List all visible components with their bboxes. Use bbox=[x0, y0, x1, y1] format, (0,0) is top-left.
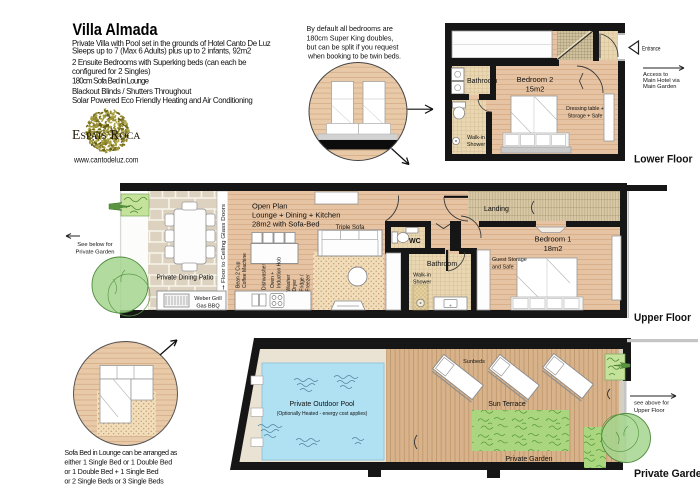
svg-text:Coffee Machine: Coffee Machine bbox=[242, 253, 248, 288]
svg-text:Upper Floor: Upper Floor bbox=[634, 408, 665, 414]
svg-text:configured for 2 Singles): configured for 2 Singles) bbox=[72, 67, 151, 76]
svg-text:Villa Almada: Villa Almada bbox=[73, 21, 159, 39]
svg-text:or 2 Single Beds or 3 Single B: or 2 Single Beds or 3 Single Beds bbox=[64, 477, 164, 486]
svg-text:Blackout Blinds / Shutters Thr: Blackout Blinds / Shutters Throughout bbox=[72, 87, 192, 96]
svg-text:but can be split if you reques: but can be split if you request bbox=[307, 43, 399, 52]
svg-text:Private Dining Patio: Private Dining Patio bbox=[157, 273, 214, 282]
svg-text:Oven +: Oven + bbox=[270, 272, 276, 288]
svg-text:Entrance: Entrance bbox=[642, 45, 661, 52]
svg-text:180cm Sofa Bed in Lounge: 180cm Sofa Bed in Lounge bbox=[72, 76, 150, 85]
svg-text:Bathroom: Bathroom bbox=[427, 261, 458, 268]
svg-text:Open Plan: Open Plan bbox=[252, 202, 287, 211]
svg-text:Lounge + Dining + Kitchen: Lounge + Dining + Kitchen bbox=[252, 211, 340, 220]
svg-text:(Optionally Heated - energy co: (Optionally Heated - energy cost applies… bbox=[277, 411, 368, 417]
svg-text:Gas BBQ: Gas BBQ bbox=[196, 304, 220, 310]
svg-text:Dressing table +: Dressing table + bbox=[566, 106, 604, 112]
svg-text:Bean 2 Cup: Bean 2 Cup bbox=[236, 261, 242, 288]
svg-text:Dryer: Dryer bbox=[292, 279, 298, 292]
svg-text:Sofa Bed in Lounge can be arra: Sofa Bed in Lounge can be arranged as bbox=[64, 448, 177, 457]
svg-text:Induction Hob: Induction Hob bbox=[277, 257, 283, 288]
svg-text:either 1 Single Bed or 1 Doubl: either 1 Single Bed or 1 Double Bed bbox=[64, 458, 172, 467]
svg-text:Sleeps up to 7 (Max 6 Adults): Sleeps up to 7 (Max 6 Adults) plus up to… bbox=[72, 46, 251, 55]
svg-text:28m2 with Sofa-Bed: 28m2 with Sofa-Bed bbox=[252, 220, 320, 229]
svg-text:Shower: Shower bbox=[413, 280, 431, 286]
svg-text:Private Outdoor Pool: Private Outdoor Pool bbox=[290, 401, 355, 408]
svg-text:2 Ensuite Bedrooms with Superk: 2 Ensuite Bedrooms with Superking beds (… bbox=[72, 58, 247, 67]
svg-text:see above for: see above for bbox=[634, 401, 669, 407]
svg-text:or 1 Double Bed + 1 Single Bed: or 1 Double Bed + 1 Single Bed bbox=[64, 467, 158, 476]
svg-text:Freezer: Freezer bbox=[306, 274, 312, 292]
svg-text:See below for: See below for bbox=[77, 242, 113, 248]
svg-text:Lower Floor: Lower Floor bbox=[634, 153, 693, 165]
svg-text:Private Garden: Private Garden bbox=[76, 250, 115, 256]
svg-text:Bedroom 2: Bedroom 2 bbox=[517, 75, 554, 84]
svg-text:Private Garden: Private Garden bbox=[634, 468, 700, 480]
svg-text:Landing: Landing bbox=[484, 206, 509, 213]
svg-text:180cm Super King doubles,: 180cm Super King doubles, bbox=[307, 33, 394, 42]
svg-text:Walk-in: Walk-in bbox=[467, 135, 485, 141]
svg-text:Walk-in: Walk-in bbox=[413, 273, 431, 279]
svg-text:Sun Terrace: Sun Terrace bbox=[488, 401, 526, 408]
svg-text:Guest Storage: Guest Storage bbox=[492, 257, 527, 263]
svg-text:18m2: 18m2 bbox=[544, 244, 563, 253]
svg-text:Upper Floor: Upper Floor bbox=[634, 312, 692, 324]
svg-text:Solar Powered Eco Friendly Hea: Solar Powered Eco Friendly Heating and A… bbox=[72, 96, 253, 105]
svg-text:Dishwasher: Dishwasher bbox=[262, 264, 268, 290]
svg-text:➞ Floor to Ceiling Glass Doors: ➞ Floor to Ceiling Glass Doors bbox=[221, 204, 227, 290]
svg-text:Shower: Shower bbox=[467, 142, 485, 148]
svg-text:Sunbeds: Sunbeds bbox=[463, 359, 485, 365]
svg-text:Bedroom 1: Bedroom 1 bbox=[535, 235, 572, 244]
svg-text:Main Garden: Main Garden bbox=[643, 84, 677, 90]
svg-text:By default all bedrooms are: By default all bedrooms are bbox=[307, 24, 393, 33]
svg-text:Private Garden: Private Garden bbox=[505, 456, 552, 463]
svg-text:Storage + Safe: Storage + Safe bbox=[568, 114, 603, 120]
svg-text:www.cantodeluz.com: www.cantodeluz.com bbox=[73, 155, 139, 164]
svg-text:WC: WC bbox=[409, 238, 421, 245]
svg-text:and Safe: and Safe bbox=[492, 265, 514, 271]
svg-text:15m2: 15m2 bbox=[526, 85, 545, 94]
svg-text:Weber Grill: Weber Grill bbox=[194, 296, 221, 302]
svg-text:when booking to be twin beds.: when booking to be twin beds. bbox=[307, 52, 401, 61]
